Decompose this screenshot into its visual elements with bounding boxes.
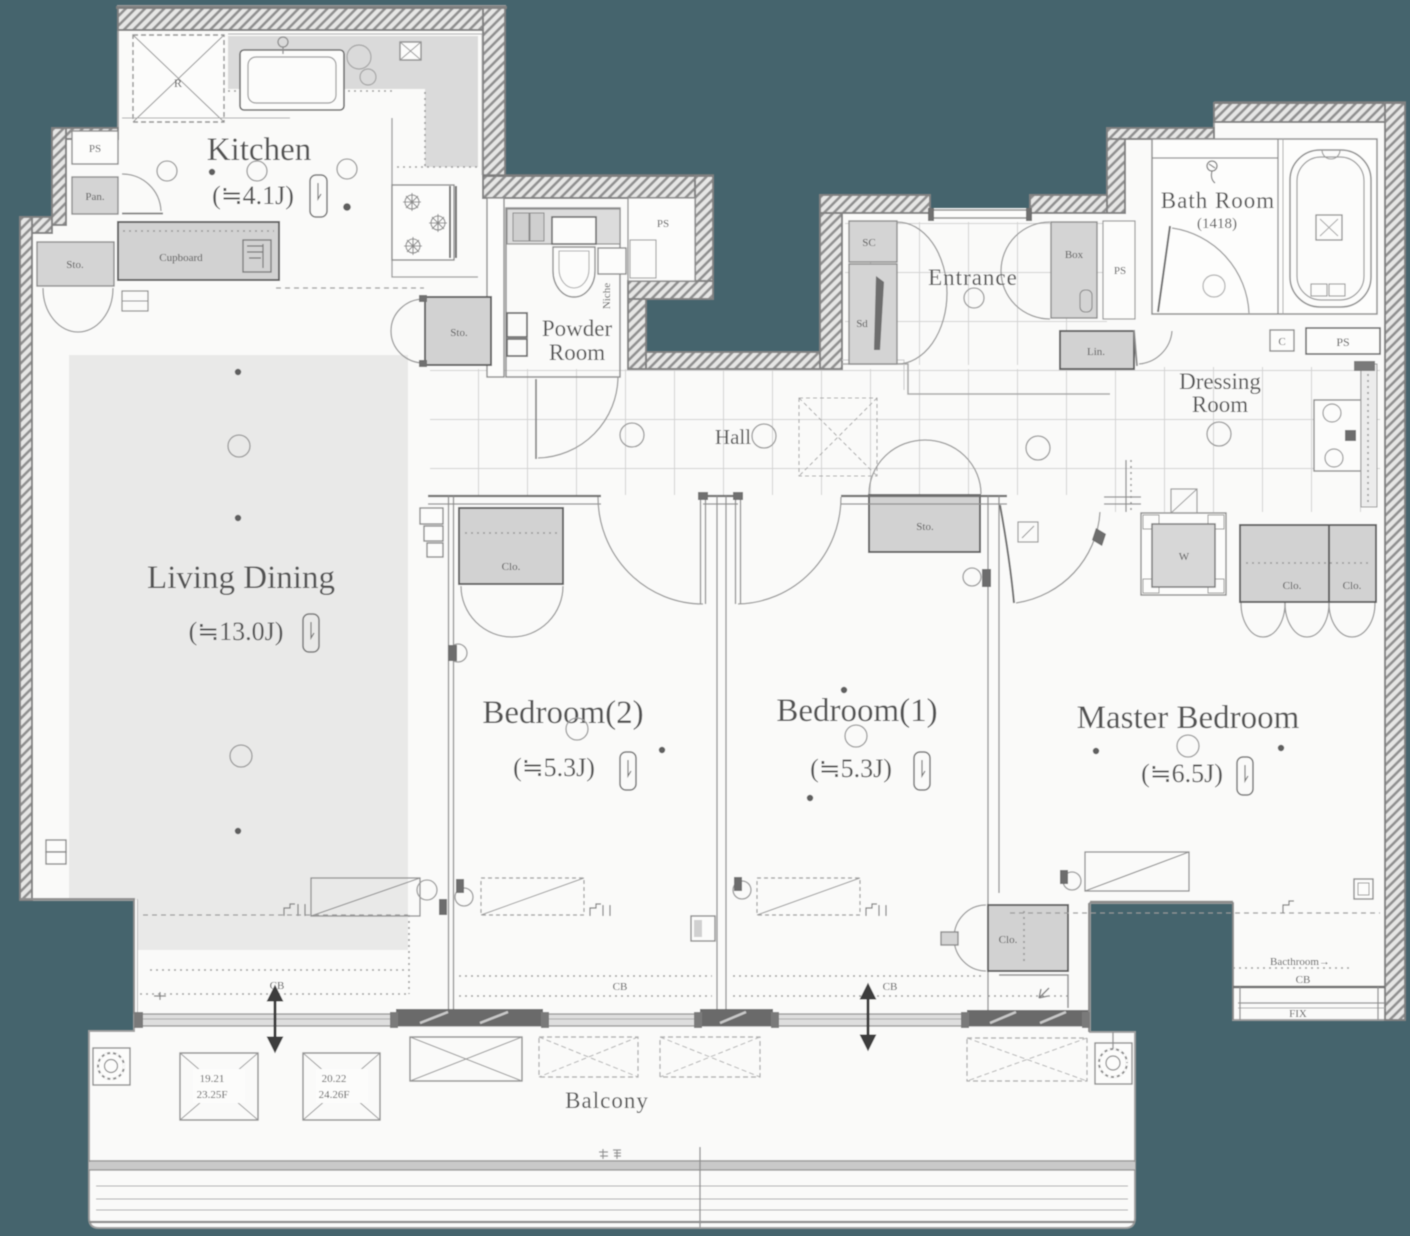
svg-text:C: C xyxy=(1278,336,1285,348)
svg-text:(≒4.1J): (≒4.1J) xyxy=(212,181,294,210)
svg-text:Lin.: Lin. xyxy=(1087,346,1105,358)
svg-text:(≒5.3J): (≒5.3J) xyxy=(513,753,595,782)
svg-text:PS: PS xyxy=(657,218,669,230)
svg-text:Hall: Hall xyxy=(715,425,751,449)
svg-text:Room: Room xyxy=(549,340,605,365)
svg-text:Clo.: Clo. xyxy=(502,561,521,573)
svg-text:Powder: Powder xyxy=(542,316,613,341)
svg-text:Sto.: Sto. xyxy=(450,327,468,339)
svg-text:Bath Room: Bath Room xyxy=(1161,188,1275,213)
svg-text:Sto.: Sto. xyxy=(916,521,934,533)
svg-text:PS: PS xyxy=(89,143,101,155)
svg-text:Entrance: Entrance xyxy=(928,265,1018,290)
svg-text:Bedroom(2): Bedroom(2) xyxy=(482,695,643,731)
svg-text:23.25F: 23.25F xyxy=(197,1089,228,1101)
svg-text:PS: PS xyxy=(1114,265,1126,277)
svg-text:Balcony: Balcony xyxy=(565,1088,649,1113)
svg-text:CB: CB xyxy=(613,981,628,993)
svg-text:(≒5.3J): (≒5.3J) xyxy=(810,754,892,783)
svg-text:PS: PS xyxy=(1336,335,1349,349)
svg-text:(≒6.5J): (≒6.5J) xyxy=(1141,759,1223,788)
svg-text:FIX: FIX xyxy=(1289,1008,1307,1020)
svg-text:Cupboard: Cupboard xyxy=(159,252,203,264)
svg-text:Niche: Niche xyxy=(601,283,613,309)
svg-text:Master Bedroom: Master Bedroom xyxy=(1077,700,1300,736)
svg-text:24.26F: 24.26F xyxy=(319,1089,350,1101)
svg-text:(≒13.0J): (≒13.0J) xyxy=(189,617,284,646)
svg-text:Sd: Sd xyxy=(856,318,868,330)
svg-text:Clo.: Clo. xyxy=(1283,580,1302,592)
svg-text:19.21: 19.21 xyxy=(200,1073,225,1085)
svg-text:(1418): (1418) xyxy=(1197,216,1237,232)
svg-text:Sto.: Sto. xyxy=(66,259,84,271)
svg-text:Clo.: Clo. xyxy=(999,934,1018,946)
svg-text:Kitchen: Kitchen xyxy=(207,132,311,168)
svg-text:SC: SC xyxy=(862,237,875,249)
svg-text:Bedroom(1): Bedroom(1) xyxy=(776,693,937,729)
svg-text:Dressing: Dressing xyxy=(1179,369,1261,394)
svg-text:20.22: 20.22 xyxy=(322,1073,347,1085)
svg-text:Box: Box xyxy=(1065,249,1084,261)
svg-text:R: R xyxy=(174,76,182,90)
svg-text:Clo.: Clo. xyxy=(1343,580,1362,592)
svg-text:Bacthroom→: Bacthroom→ xyxy=(1270,956,1330,968)
svg-text:Room: Room xyxy=(1192,392,1248,417)
svg-text:CB: CB xyxy=(1296,974,1311,986)
svg-text:Living Dining: Living Dining xyxy=(147,560,335,596)
svg-text:Pan.: Pan. xyxy=(85,191,105,203)
svg-text:W: W xyxy=(1179,551,1190,563)
svg-text:CB: CB xyxy=(883,981,898,993)
